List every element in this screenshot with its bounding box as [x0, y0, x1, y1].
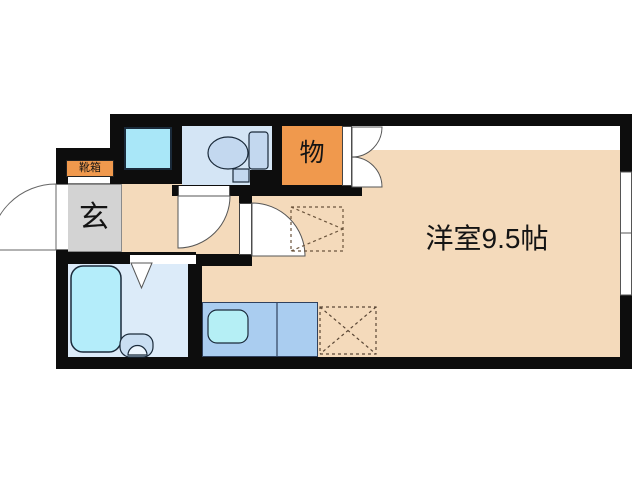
- washbasin: [120, 334, 153, 357]
- kitchen-sink: [208, 310, 248, 343]
- toilet-tank: [249, 132, 268, 169]
- toilet-door-arc: [178, 196, 230, 248]
- toilet-control-box: [233, 169, 249, 182]
- closet-door-arc-bottom: [352, 157, 382, 187]
- entrance-label: 玄: [66, 203, 122, 233]
- closet-door-arc-top: [352, 127, 382, 157]
- toilet-bowl: [208, 137, 248, 169]
- toilet: [208, 132, 268, 182]
- main-room-label: 洋室9.5帖: [397, 225, 577, 253]
- bathtub: [71, 266, 121, 352]
- folding-bath-door: [131, 263, 152, 288]
- entrance-door-arc: [0, 184, 56, 250]
- storage-label: 物: [282, 141, 342, 166]
- window: [620, 172, 632, 295]
- floor-plan: 靴箱 玄 物 洋室9.5帖: [0, 0, 640, 480]
- refrigerator-space-dashed: [320, 307, 376, 354]
